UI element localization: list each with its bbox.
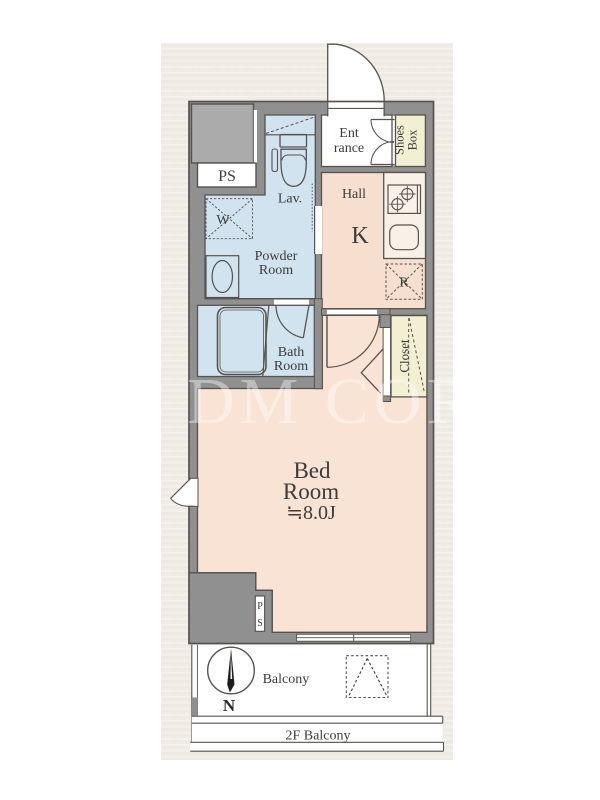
svg-text:Powder: Powder [255,249,298,264]
svg-text:Bath: Bath [278,345,304,360]
svg-text:Ent: Ent [339,126,359,141]
svg-text:P: P [257,601,263,612]
svg-text:Box: Box [406,129,420,151]
svg-text:PS: PS [218,168,236,185]
svg-text:Room: Room [259,263,293,278]
svg-text:S: S [257,618,263,629]
svg-text:Hall: Hall [342,187,366,202]
svg-text:Shoes: Shoes [393,125,407,155]
svg-text:Lav.: Lav. [278,192,302,207]
svg-text:rance: rance [334,141,364,156]
svg-text:≒8.0J: ≒8.0J [286,502,336,524]
svg-text:N: N [223,696,236,715]
svg-text:K: K [351,223,369,249]
svg-text:2F Balcony: 2F Balcony [286,729,351,744]
svg-text:DM CORP: DM CORP [187,365,517,438]
svg-text:W: W [216,213,230,228]
svg-text:R: R [399,276,409,291]
svg-text:Room: Room [283,479,339,504]
svg-text:Balcony: Balcony [263,672,310,687]
